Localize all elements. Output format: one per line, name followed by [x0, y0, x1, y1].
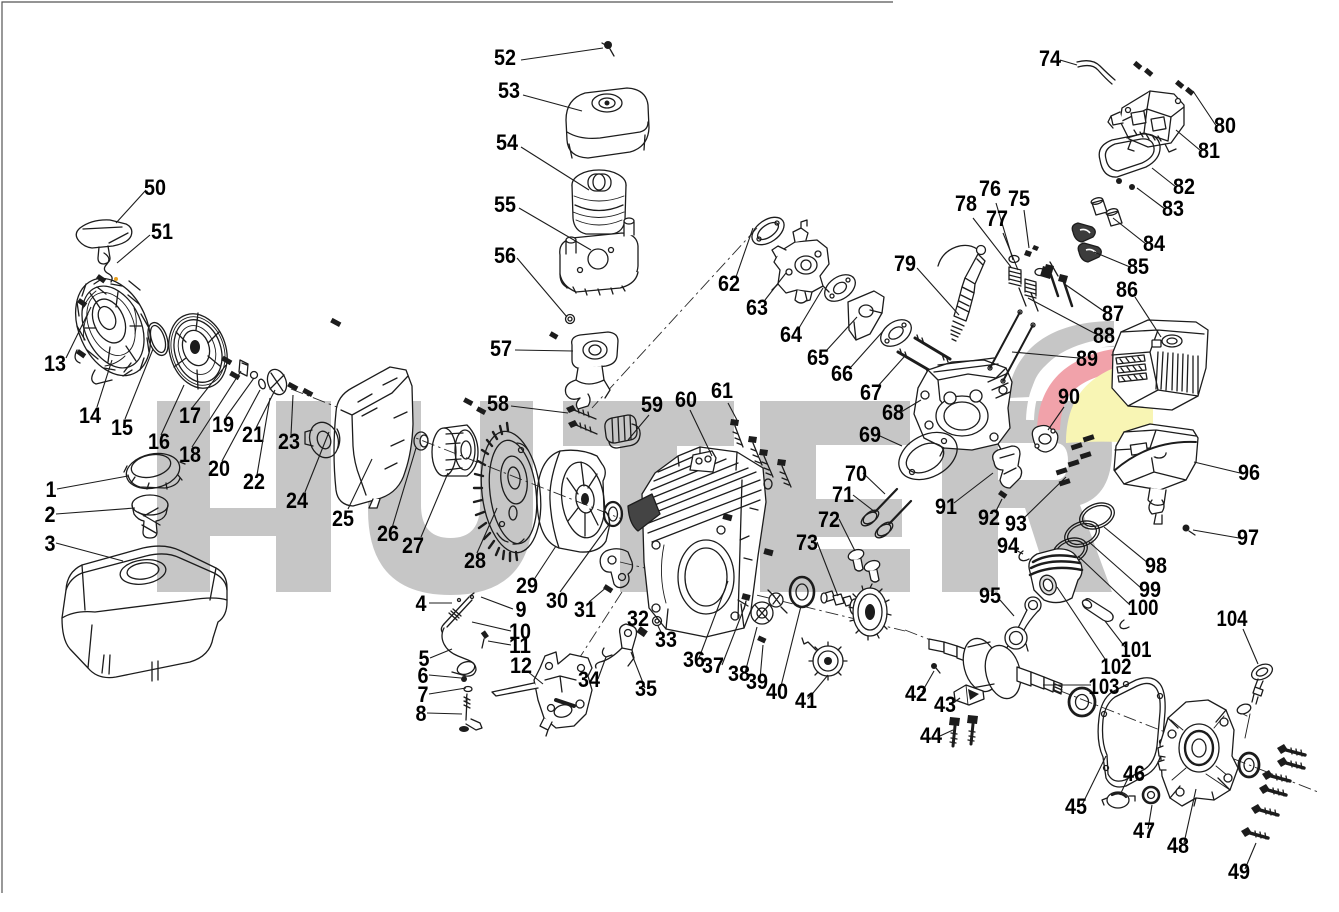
- svg-text:63: 63: [746, 295, 768, 320]
- svg-text:34: 34: [578, 667, 601, 692]
- svg-text:94: 94: [997, 533, 1020, 558]
- svg-text:23: 23: [278, 429, 300, 454]
- svg-text:83: 83: [1162, 196, 1184, 221]
- svg-text:91: 91: [935, 494, 957, 519]
- svg-text:47: 47: [1133, 818, 1155, 843]
- svg-text:41: 41: [795, 688, 817, 713]
- svg-text:37: 37: [702, 653, 724, 678]
- svg-text:13: 13: [44, 351, 66, 376]
- svg-text:74: 74: [1039, 46, 1062, 71]
- svg-text:24: 24: [286, 488, 309, 513]
- svg-text:29: 29: [516, 573, 538, 598]
- svg-text:78: 78: [955, 191, 977, 216]
- svg-text:76: 76: [979, 176, 1001, 201]
- svg-text:103: 103: [1089, 674, 1120, 699]
- svg-text:33: 33: [655, 627, 677, 652]
- svg-text:58: 58: [487, 391, 509, 416]
- svg-text:85: 85: [1127, 254, 1149, 279]
- svg-text:104: 104: [1217, 606, 1249, 631]
- svg-text:92: 92: [978, 505, 1000, 530]
- svg-text:53: 53: [498, 78, 520, 103]
- svg-text:56: 56: [494, 243, 516, 268]
- svg-text:60: 60: [675, 387, 697, 412]
- svg-text:100: 100: [1128, 595, 1159, 620]
- svg-text:12: 12: [510, 653, 532, 678]
- svg-text:79: 79: [894, 251, 916, 276]
- svg-text:28: 28: [464, 548, 486, 573]
- svg-text:55: 55: [494, 192, 516, 217]
- svg-text:89: 89: [1076, 346, 1098, 371]
- svg-text:2: 2: [45, 502, 56, 527]
- svg-text:19: 19: [212, 412, 234, 437]
- svg-text:32: 32: [627, 606, 649, 631]
- svg-text:81: 81: [1198, 138, 1220, 163]
- svg-text:16: 16: [148, 429, 170, 454]
- svg-text:72: 72: [818, 507, 840, 532]
- svg-text:97: 97: [1237, 525, 1259, 550]
- svg-text:62: 62: [718, 271, 740, 296]
- svg-text:17: 17: [179, 403, 201, 428]
- svg-text:22: 22: [243, 469, 265, 494]
- svg-text:8: 8: [416, 701, 427, 726]
- svg-text:51: 51: [151, 219, 173, 244]
- svg-text:80: 80: [1214, 113, 1236, 138]
- svg-text:59: 59: [641, 392, 663, 417]
- svg-text:42: 42: [905, 681, 927, 706]
- svg-text:57: 57: [490, 336, 512, 361]
- svg-text:96: 96: [1238, 460, 1260, 485]
- svg-text:3: 3: [45, 531, 56, 556]
- svg-text:88: 88: [1093, 323, 1115, 348]
- svg-text:66: 66: [831, 361, 853, 386]
- svg-text:46: 46: [1123, 761, 1145, 786]
- svg-text:30: 30: [546, 588, 568, 613]
- svg-text:48: 48: [1167, 833, 1189, 858]
- svg-text:49: 49: [1228, 859, 1250, 884]
- svg-text:71: 71: [832, 482, 854, 507]
- svg-text:50: 50: [144, 175, 166, 200]
- svg-text:18: 18: [179, 442, 201, 467]
- svg-text:69: 69: [859, 422, 881, 447]
- svg-text:25: 25: [332, 506, 354, 531]
- svg-text:68: 68: [882, 400, 904, 425]
- svg-text:21: 21: [242, 422, 264, 447]
- svg-text:90: 90: [1058, 384, 1080, 409]
- svg-text:73: 73: [796, 530, 818, 555]
- svg-text:77: 77: [986, 206, 1008, 231]
- svg-text:75: 75: [1008, 186, 1030, 211]
- svg-text:44: 44: [920, 723, 943, 748]
- svg-text:52: 52: [494, 45, 516, 70]
- svg-text:98: 98: [1145, 553, 1167, 578]
- svg-text:27: 27: [402, 533, 424, 558]
- svg-text:65: 65: [807, 345, 829, 370]
- svg-text:61: 61: [711, 378, 733, 403]
- svg-text:64: 64: [780, 322, 803, 347]
- svg-text:54: 54: [496, 130, 519, 155]
- svg-text:40: 40: [766, 679, 788, 704]
- svg-text:84: 84: [1143, 231, 1166, 256]
- svg-text:1: 1: [46, 477, 57, 502]
- svg-text:86: 86: [1116, 277, 1138, 302]
- svg-text:20: 20: [208, 456, 230, 481]
- svg-text:31: 31: [574, 597, 596, 622]
- svg-text:26: 26: [377, 521, 399, 546]
- svg-text:4: 4: [416, 591, 428, 616]
- svg-text:39: 39: [746, 669, 768, 694]
- svg-text:14: 14: [79, 403, 102, 428]
- svg-text:45: 45: [1065, 794, 1087, 819]
- svg-text:15: 15: [111, 415, 133, 440]
- svg-text:95: 95: [979, 583, 1001, 608]
- svg-text:35: 35: [635, 676, 657, 701]
- svg-text:67: 67: [860, 380, 882, 405]
- svg-text:43: 43: [934, 692, 956, 717]
